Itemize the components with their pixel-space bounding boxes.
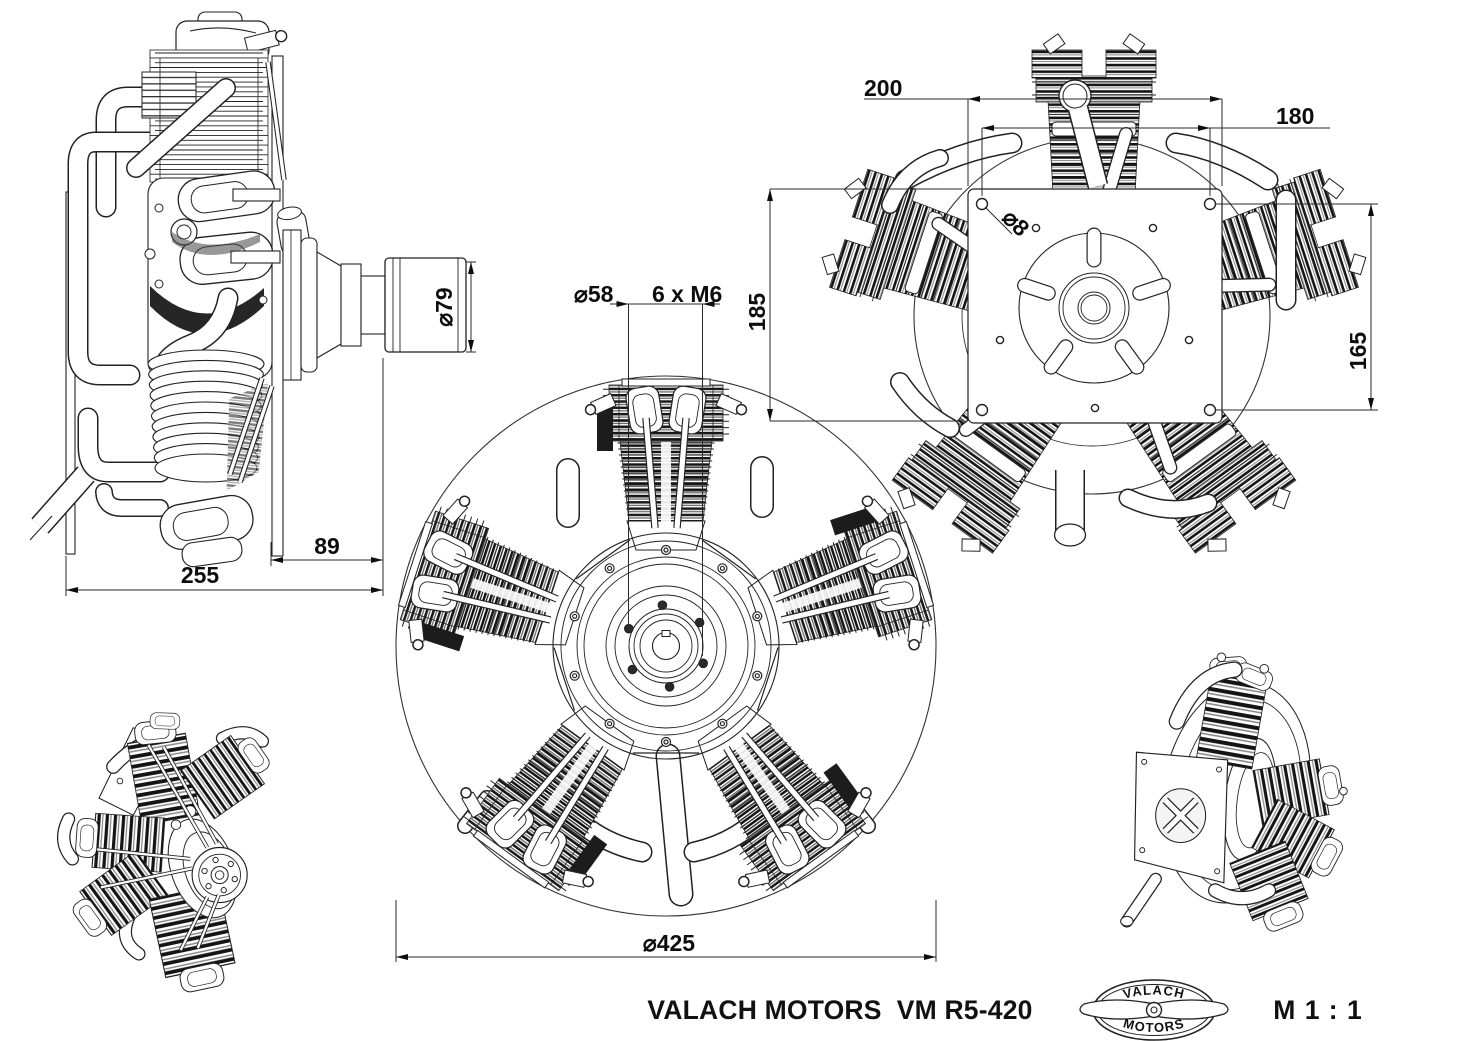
svg-text:255: 255 xyxy=(181,562,220,588)
svg-text:M 1 : 1: M 1 : 1 xyxy=(1273,995,1362,1025)
svg-text:VALACH MOTORS VM R5-420: VALACH MOTORS VM R5-420 xyxy=(647,995,1032,1025)
svg-text:89: 89 xyxy=(314,533,340,559)
svg-text:185: 185 xyxy=(744,293,770,332)
svg-text:180: 180 xyxy=(1276,103,1314,129)
svg-text:165: 165 xyxy=(1345,332,1371,371)
svg-text:⌀58: ⌀58 xyxy=(574,281,614,307)
svg-text:⌀79: ⌀79 xyxy=(431,287,457,326)
svg-text:⌀425: ⌀425 xyxy=(643,930,695,956)
svg-text:200: 200 xyxy=(864,75,902,101)
